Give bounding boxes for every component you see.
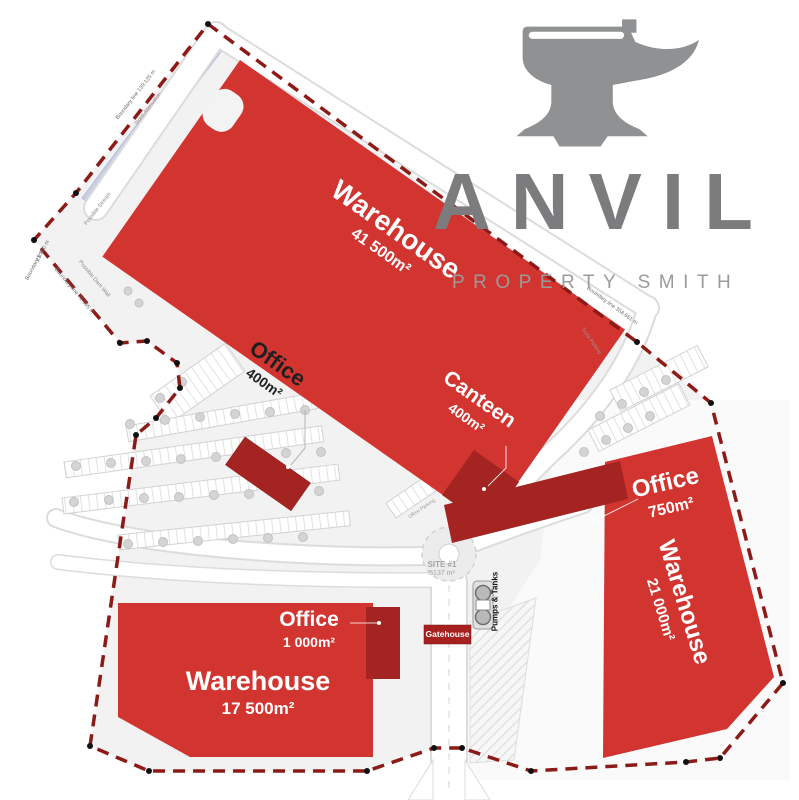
site-plan-page: { "brand": { "name": "ANVIL", "tagline":… bbox=[0, 0, 799, 800]
roundabout-island bbox=[439, 544, 459, 564]
pumps-tanks-icon bbox=[473, 581, 493, 629]
site-plan-drawing bbox=[0, 0, 799, 800]
building-office-sw bbox=[366, 607, 400, 679]
building-warehouse-sw bbox=[118, 603, 373, 757]
road-flare-left bbox=[408, 760, 433, 800]
gatehouse-box bbox=[424, 625, 471, 644]
